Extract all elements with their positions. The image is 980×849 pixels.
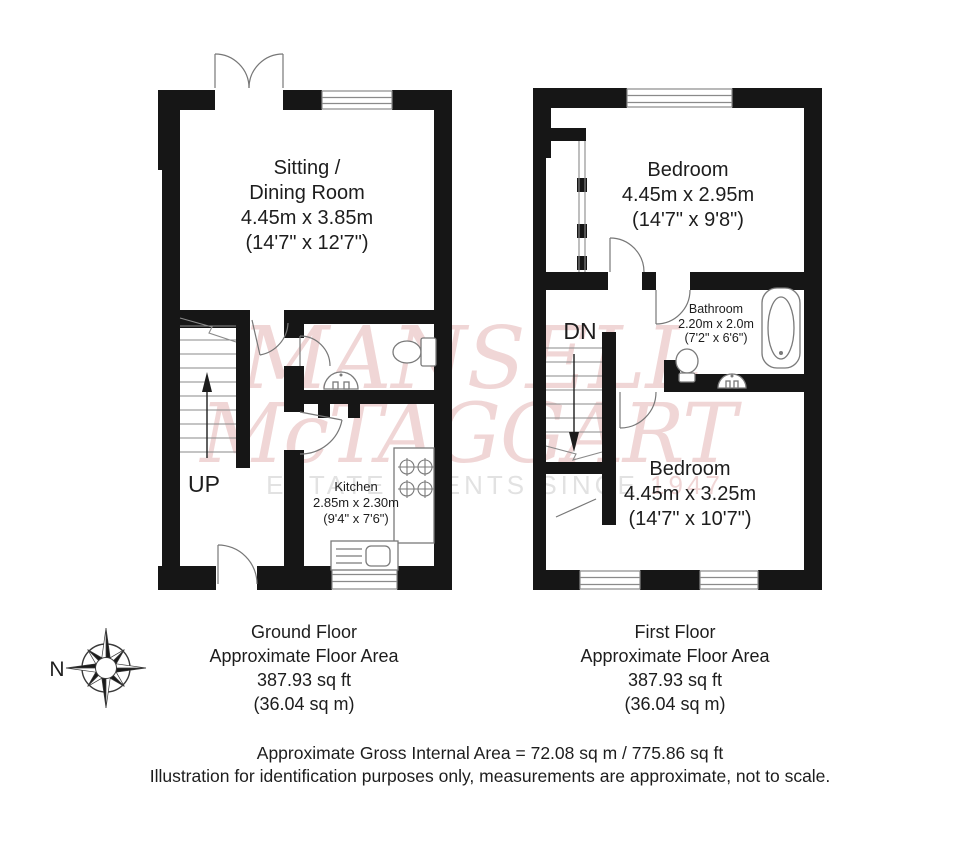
window xyxy=(627,89,732,107)
sitting-room-metric: 4.45m x 3.85m xyxy=(241,207,373,229)
bedroom1-door xyxy=(610,238,644,272)
bedroom2-door xyxy=(620,392,656,428)
bedroom1-imperial: (14'7" x 9'8") xyxy=(632,209,744,231)
bedroom1-metric: 4.45m x 2.95m xyxy=(622,184,754,206)
dn-label: DN xyxy=(563,318,596,344)
kitchen-metric: 2.85m x 2.30m xyxy=(313,495,399,510)
toilet-icon xyxy=(676,349,698,382)
bedroom1-label: Bedroom xyxy=(647,159,728,181)
closet-door xyxy=(556,499,596,517)
bedroom2-metric: 4.45m x 3.25m xyxy=(624,483,756,505)
bedroom2-imperial: (14'7" x 10'7") xyxy=(628,508,751,530)
bathroom-metric: 2.20m x 2.0m xyxy=(678,317,754,331)
bathroom-imperial: (7'2" x 6'6") xyxy=(685,331,748,345)
window xyxy=(700,571,758,589)
first-floor-plan: Bedroom 4.45m x 2.95m (14'7" x 9'8") DN … xyxy=(533,88,822,590)
window xyxy=(580,571,640,589)
up-label: UP xyxy=(188,471,220,497)
bathtub-icon xyxy=(762,288,800,368)
footer-disclaimer: Approximate Gross Internal Area = 72.08 … xyxy=(0,742,980,788)
ground-caption-area-ft: 387.93 sq ft xyxy=(154,668,454,692)
sitting-room-imperial: (14'7" x 12'7") xyxy=(245,232,368,254)
sink-icon xyxy=(324,372,358,389)
floorplan-drawing: Sitting / Dining Room 4.45m x 3.85m (14'… xyxy=(0,0,980,849)
wardrobe xyxy=(579,141,585,272)
gross-internal-area: Approximate Gross Internal Area = 72.08 … xyxy=(0,742,980,765)
ground-caption-area-m: (36.04 sq m) xyxy=(154,692,454,716)
first-caption-area-ft: 387.93 sq ft xyxy=(525,668,825,692)
ground-floor-plan: Sitting / Dining Room 4.45m x 3.85m (14'… xyxy=(158,54,452,590)
wc-fixtures xyxy=(324,338,436,389)
north-label: N xyxy=(49,658,64,681)
kitchen-door xyxy=(300,412,342,454)
first-floor-caption: First Floor Approximate Floor Area 387.9… xyxy=(525,620,825,716)
kitchen-sink-unit xyxy=(331,541,398,570)
bedroom2-label: Bedroom xyxy=(649,458,730,480)
sitting-room-label-line1: Sitting / xyxy=(274,157,341,179)
compass-icon: N xyxy=(44,618,168,718)
first-caption-title: First Floor xyxy=(525,620,825,644)
window xyxy=(322,91,392,109)
hall-door xyxy=(252,320,288,355)
kitchen-label: Kitchen xyxy=(334,479,377,494)
sitting-room-label-line2: Dining Room xyxy=(249,182,365,204)
toilet-icon xyxy=(393,338,436,366)
french-doors xyxy=(215,54,283,88)
stairs-up-arrow xyxy=(202,372,212,458)
floorplan-page: MANSELL McTAGGART ESTATE AGENTS SINCE 19… xyxy=(0,0,980,849)
disclaimer-text: Illustration for identification purposes… xyxy=(0,765,980,788)
first-caption-area-m: (36.04 sq m) xyxy=(525,692,825,716)
bathroom-label: Bathroom xyxy=(689,302,743,316)
ground-caption-subtitle: Approximate Floor Area xyxy=(154,644,454,668)
front-door xyxy=(218,545,257,584)
stairs-down-arrow xyxy=(569,354,579,452)
first-caption-subtitle: Approximate Floor Area xyxy=(525,644,825,668)
kitchen-imperial: (9'4" x 7'6") xyxy=(323,511,389,526)
wc-door xyxy=(300,336,330,366)
ground-floor-caption: Ground Floor Approximate Floor Area 387.… xyxy=(154,620,454,716)
ground-caption-title: Ground Floor xyxy=(154,620,454,644)
